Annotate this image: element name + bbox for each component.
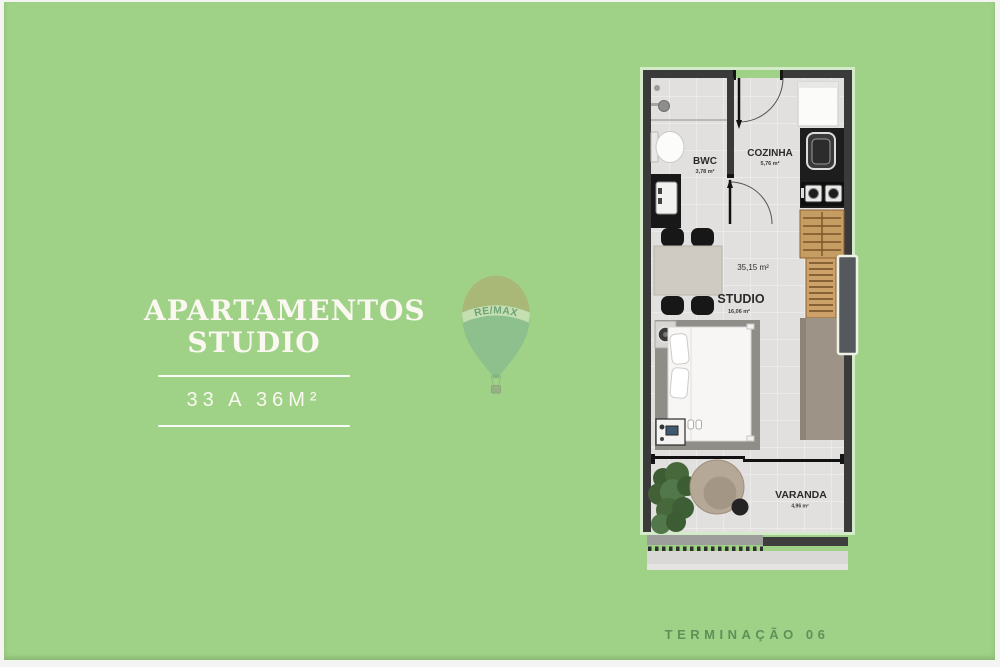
area-range: 33 A 36M²: [144, 389, 364, 412]
remax-balloon-watermark: RE/MAX: [455, 258, 537, 410]
balcony-railing: [647, 535, 848, 549]
chair-icon: [691, 228, 714, 247]
bed-zone: [655, 320, 760, 450]
floor-plan: BWC 3,78 m²: [643, 70, 852, 570]
bathroom-wall: [727, 78, 734, 178]
bed-corner-post: [747, 436, 754, 441]
sink-drawer: [658, 198, 662, 204]
fridge-top: [798, 82, 838, 88]
toilet-icon: [656, 132, 684, 163]
room-label-studio: STUDIO: [717, 292, 765, 306]
lamp-center: [663, 332, 668, 337]
total-area-label: 35,15 m²: [737, 263, 769, 272]
title-line-2: STUDIO: [187, 326, 320, 359]
room-area-studio: 16,06 m²: [728, 308, 750, 315]
laptop-icon: [666, 426, 678, 435]
side-table-icon: [732, 499, 749, 516]
title-line-1: APARTAMENTOS: [144, 294, 426, 327]
title-block: APARTAMENTOS STUDIO 33 A 36M²: [144, 295, 364, 439]
flyer-page: APARTAMENTOS STUDIO 33 A 36M² RE/MAX: [0, 0, 1000, 667]
dining-table: [654, 246, 722, 295]
unit-label: TERMINAÇÃO 06: [597, 627, 897, 642]
shower-drain-icon: [654, 85, 660, 91]
balloon-skirt: [492, 373, 500, 378]
desk-item: [660, 425, 665, 430]
balloon-basket: [491, 386, 500, 393]
stove-knobs: [801, 188, 804, 198]
room-area-varanda: 4,96 m²: [791, 504, 809, 510]
chair-icon: [661, 296, 684, 315]
ladder-shelf: [806, 258, 836, 318]
pillow: [669, 333, 689, 365]
fridge-icon: [798, 82, 838, 126]
armchair-seat: [704, 477, 737, 510]
chair-icon: [661, 228, 684, 247]
bed-corner-post: [747, 324, 754, 329]
chair-icon: [691, 296, 714, 315]
sink-basin: [812, 139, 830, 164]
green-background: APARTAMENTOS STUDIO 33 A 36M² RE/MAX: [4, 2, 995, 660]
room-label-bwc: BWC: [693, 156, 717, 167]
ac-ledge: [838, 256, 857, 354]
sink-drawer: [658, 188, 662, 194]
facade-strip: [647, 551, 848, 566]
room-area-cozinha: 5,76 m²: [761, 160, 780, 167]
slipper: [688, 420, 694, 429]
wood-cabinet: [800, 210, 844, 258]
desk-item: [660, 437, 664, 441]
facade-fade: [647, 564, 848, 570]
pillow: [670, 367, 690, 398]
shower-head-icon: [659, 101, 670, 112]
room-area-bwc: 3,78 m²: [696, 168, 715, 175]
divider-line-bottom: [158, 425, 350, 427]
burner-ring: [809, 189, 819, 199]
room-label-varanda: VARANDA: [775, 489, 827, 501]
wardrobe-shade: [800, 318, 806, 440]
slipper: [696, 420, 702, 429]
room-label-cozinha: COZINHA: [747, 148, 793, 159]
page-title: APARTAMENTOS STUDIO: [144, 295, 364, 360]
burner-ring: [829, 189, 839, 199]
divider-line-top: [158, 375, 350, 377]
